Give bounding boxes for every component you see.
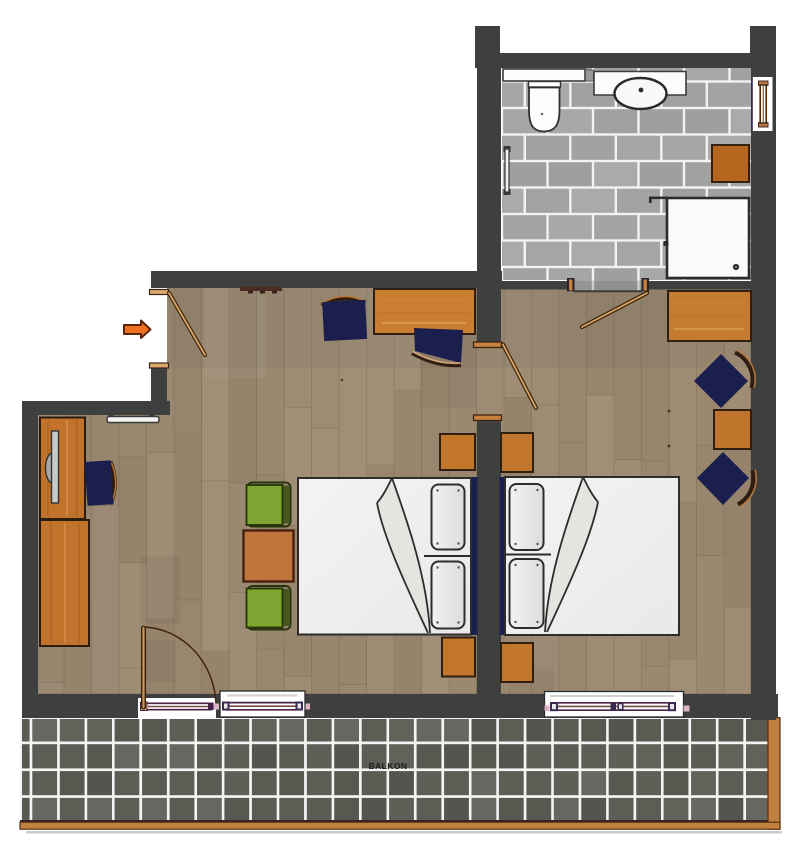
svg-text:BALKON: BALKON	[369, 761, 408, 771]
